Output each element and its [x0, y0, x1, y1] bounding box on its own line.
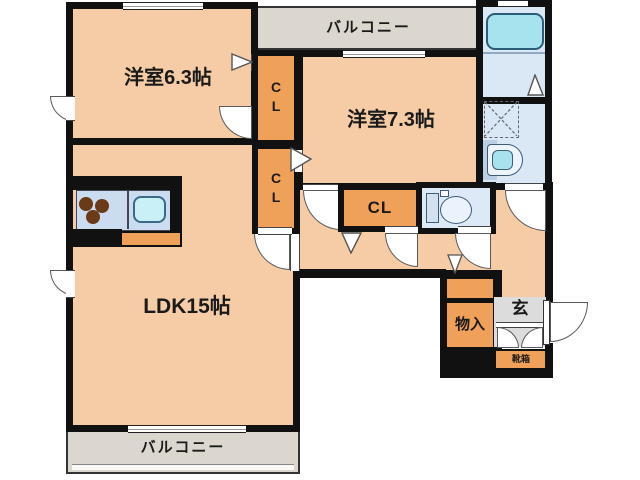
stove-burners-icon	[79, 197, 93, 211]
storage-label: 物入	[455, 317, 485, 334]
washbasin-icon	[487, 144, 523, 176]
door-marker-triangle	[231, 53, 253, 71]
door-gap	[290, 233, 300, 271]
door-marker-triangle	[290, 147, 312, 172]
stove-burners-icon	[86, 210, 100, 224]
closet-3: CL	[338, 184, 422, 232]
entrance-door-arc	[550, 302, 588, 342]
window	[343, 50, 425, 58]
room-ldk-label: LDK15帖	[143, 295, 231, 318]
window	[123, 2, 203, 10]
window	[66, 270, 75, 298]
closet-1: CL	[252, 50, 300, 146]
shoe-cabinet-label: 靴箱	[512, 355, 530, 365]
balcony-south: バルコニー	[66, 429, 300, 474]
door-gap	[258, 227, 292, 235]
closet-3-label: CL	[368, 199, 393, 218]
bathtub-icon	[486, 13, 544, 50]
entrance-door-leaf	[543, 300, 550, 345]
entrance-label: 玄	[494, 300, 546, 319]
storage: 物入	[447, 303, 493, 347]
bath-shelf-line	[483, 52, 545, 54]
balcony-north: バルコニー	[255, 6, 482, 50]
kitchen-counter	[76, 190, 172, 231]
balcony-south-label: バルコニー	[141, 440, 226, 457]
wall	[170, 190, 182, 231]
shoe-cabinet: 靴箱	[494, 349, 548, 370]
wall	[70, 229, 122, 247]
closet-2-label: CL	[268, 170, 284, 208]
kitchen-cabinet	[120, 231, 182, 247]
wall	[70, 176, 182, 190]
balcony-north-label: バルコニー	[326, 20, 411, 37]
window	[498, 0, 528, 7]
toilet-icon	[440, 196, 472, 224]
counter-divider	[127, 191, 129, 229]
floor-plan-canvas: バルコニー バルコニー 物入 玄 靴箱 LDK15帖	[0, 0, 640, 480]
door-marker-triangle	[447, 254, 463, 274]
door-marker-triangle	[527, 74, 544, 96]
room-western-7-3-label: 洋室7.3帖	[347, 109, 435, 131]
washing-machine-pan-icon	[484, 101, 519, 138]
closet-1-label: CL	[268, 79, 284, 117]
window	[66, 96, 75, 121]
balcony-ledge	[72, 464, 294, 470]
wall	[500, 370, 553, 378]
storage-upper	[447, 279, 493, 298]
door-marker-triangle	[341, 232, 362, 254]
wall	[545, 182, 553, 303]
room-western-6-3-label: 洋室6.3帖	[124, 67, 212, 89]
wall	[293, 269, 446, 278]
toilet-flush-button	[440, 190, 449, 197]
kitchen-sink-icon	[133, 196, 166, 223]
toilet-tank	[426, 193, 439, 223]
room-western-7-3: 洋室7.3帖	[296, 50, 486, 190]
window	[128, 425, 246, 433]
